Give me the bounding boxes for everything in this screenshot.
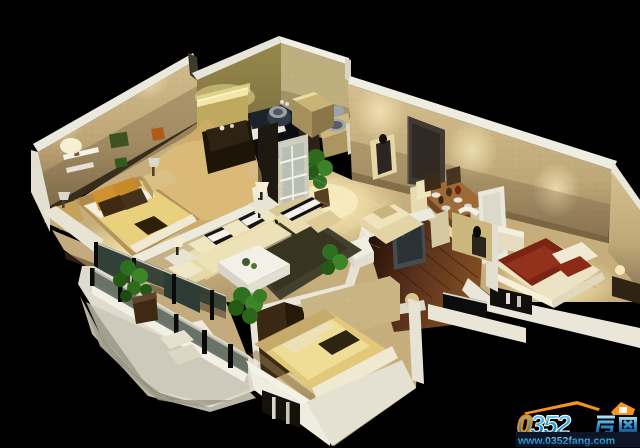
svg-text:www.0352fang.com: www.0352fang.com (517, 435, 615, 447)
